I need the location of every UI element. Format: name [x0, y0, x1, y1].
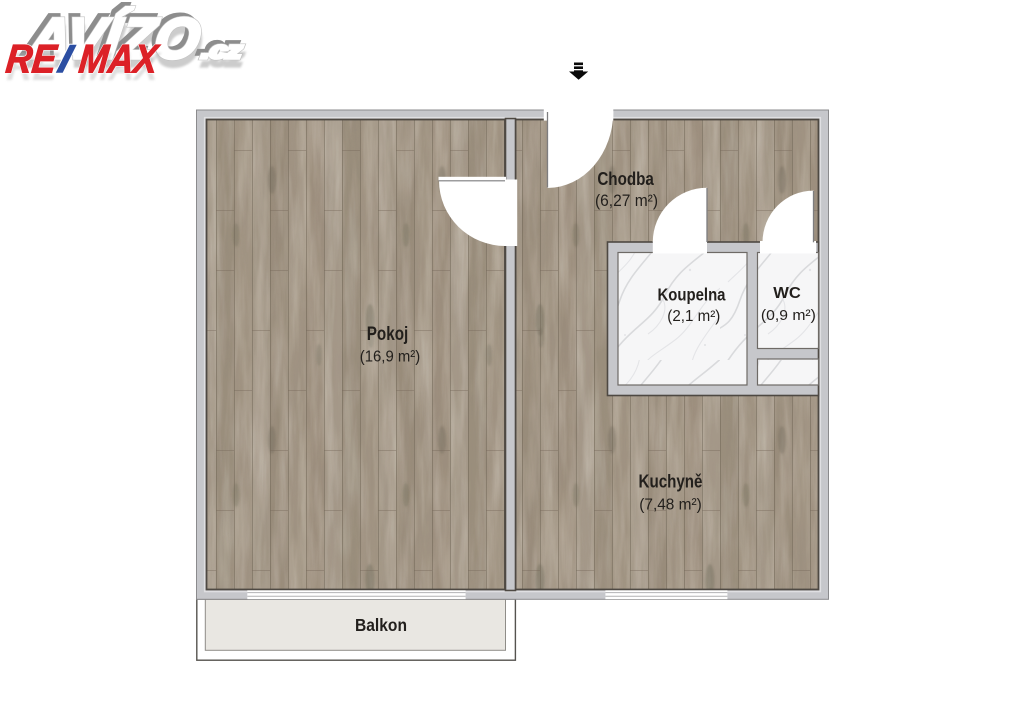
svg-text:(2,1 m²): (2,1 m²) — [667, 308, 720, 325]
svg-text:(16,9 m²): (16,9 m²) — [360, 349, 421, 366]
svg-text:Koupelna: Koupelna — [658, 285, 726, 305]
svg-text:MAX: MAX — [77, 38, 162, 82]
svg-text:(6,27 m²): (6,27 m²) — [595, 192, 658, 210]
svg-text:(0,9 m²): (0,9 m²) — [761, 307, 816, 324]
svg-text:Pokoj: Pokoj — [367, 323, 409, 345]
svg-text:RE: RE — [4, 38, 60, 82]
svg-text:Kuchyně: Kuchyně — [639, 472, 703, 492]
svg-text:Chodba: Chodba — [597, 168, 654, 189]
svg-text:Balkon: Balkon — [355, 615, 407, 635]
svg-text:.cz: .cz — [200, 37, 244, 63]
svg-text:WC: WC — [773, 285, 801, 302]
svg-text:(7,48 m²): (7,48 m²) — [639, 497, 702, 514]
